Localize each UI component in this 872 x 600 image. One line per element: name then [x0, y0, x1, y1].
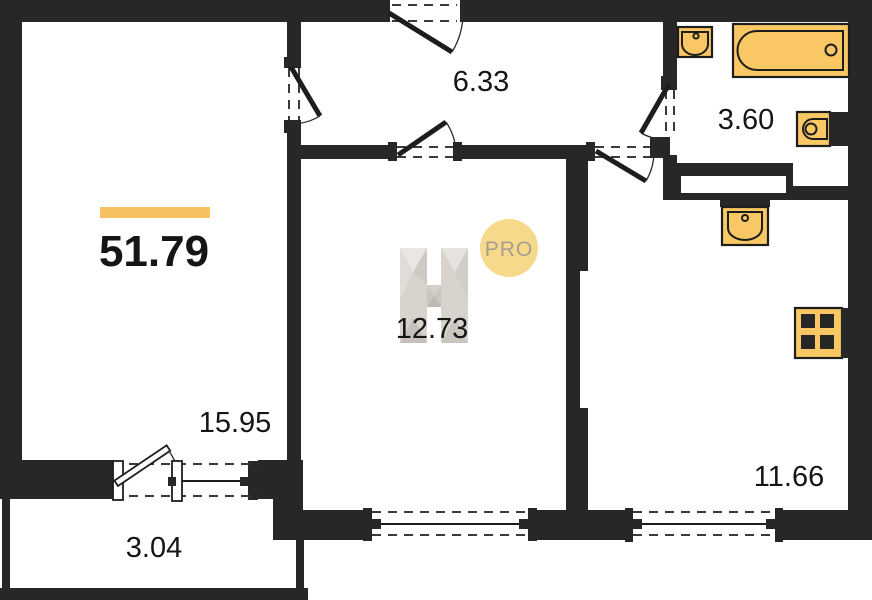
door-post: [453, 142, 462, 161]
window-end: [240, 477, 248, 486]
bathtub-icon: [733, 24, 849, 77]
kitchen-door: [596, 151, 654, 181]
door-leaf: [596, 151, 646, 181]
window-post: [625, 508, 633, 542]
door-leaf: [389, 13, 452, 52]
wall-segment: [273, 493, 303, 540]
wall-segment: [793, 186, 848, 200]
balcony-door-window: [113, 445, 248, 501]
room-area-label-balcony: 3.04: [126, 532, 182, 564]
windows: [113, 445, 775, 529]
entrance-door: [389, 13, 463, 52]
living-room-door: [291, 67, 320, 124]
wall-segment: [0, 0, 390, 22]
window-end: [766, 519, 775, 529]
wall-segment: [287, 133, 301, 460]
room-area-label-kitchen: 11.66: [754, 461, 824, 493]
washbasin-icon: [678, 27, 712, 57]
kitchen-window: [633, 519, 775, 529]
stove-icon: [795, 308, 848, 358]
watermark-pro-badge: PRO: [480, 219, 538, 277]
stove-edge: [841, 308, 848, 358]
wall-segment: [303, 510, 372, 540]
floor-plan: PRO: [0, 0, 872, 600]
bathroom-door: [641, 84, 669, 140]
toilet-icon: [797, 112, 848, 146]
wall-segment: [566, 145, 588, 271]
burner: [820, 314, 834, 328]
room-area-label-hallway: 6.33: [453, 66, 509, 98]
labels: 51.79 15.95 6.33 3.60 12.73 11.66 3.04: [99, 66, 824, 564]
wall-segment: [848, 22, 872, 540]
door-leaf: [641, 84, 669, 133]
window-post: [363, 508, 372, 541]
window-end: [372, 519, 381, 529]
wall-segment: [663, 155, 677, 200]
room-area-label-bathroom: 3.60: [718, 104, 774, 136]
wall-segment: [775, 510, 872, 540]
kitchen-sink-icon: [720, 198, 770, 245]
wall-segment: [0, 0, 22, 499]
window-end: [633, 519, 642, 529]
wall-segment: [301, 145, 388, 159]
wall-segment: [566, 271, 580, 408]
balcony-wall: [0, 588, 308, 600]
total-area-accent-bar: [100, 207, 210, 218]
window-post: [528, 508, 537, 541]
bathroom-door-opening: [666, 90, 674, 137]
burner: [801, 314, 815, 328]
balcony-wall: [296, 538, 304, 593]
balcony-wall: [2, 498, 10, 590]
door-post: [388, 142, 397, 161]
room-area-label-living-room: 15.95: [199, 407, 272, 439]
burner: [820, 335, 834, 349]
burner: [801, 335, 815, 349]
window-post: [775, 508, 783, 542]
window-post: [248, 461, 258, 500]
wall-segment: [460, 0, 872, 22]
door-leaf: [398, 122, 446, 155]
wall-segment: [566, 408, 588, 510]
counter-edge: [720, 198, 770, 207]
bedroom-door: [398, 122, 456, 155]
window-end: [519, 519, 528, 529]
floor-plan-svg: PRO: [0, 0, 872, 600]
toilet-tank: [829, 112, 848, 146]
bedroom-window: [372, 519, 528, 529]
wall-niche: [681, 176, 786, 193]
window-end: [168, 477, 176, 486]
total-area-label: 51.79: [99, 227, 209, 276]
door-post: [284, 120, 301, 133]
pro-badge-text: PRO: [485, 238, 534, 261]
wall-segment: [287, 22, 301, 57]
door-leaf: [291, 67, 320, 116]
wall-segment: [663, 22, 677, 78]
wall-segment: [528, 510, 633, 540]
wall-segment: [22, 460, 113, 499]
room-area-label-bedroom: 12.73: [396, 313, 469, 345]
